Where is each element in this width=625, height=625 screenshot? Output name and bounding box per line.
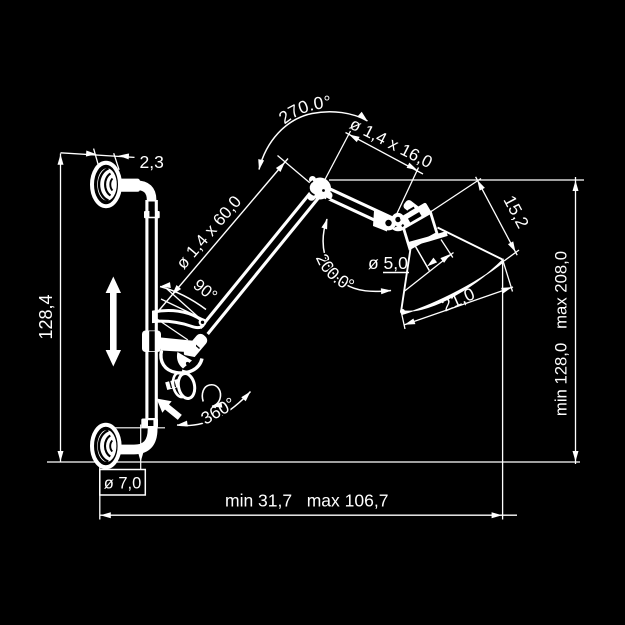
- svg-text:128,4: 128,4: [36, 294, 56, 339]
- svg-text:2,3: 2,3: [140, 152, 164, 172]
- svg-text:min 128,0 max 208,0: min 128,0 max 208,0: [552, 251, 571, 416]
- svg-text:min 31,7 max 106,7: min 31,7 max 106,7: [225, 491, 388, 511]
- svg-text:ø 5,0: ø 5,0: [368, 253, 408, 273]
- svg-text:ø 7,0: ø 7,0: [104, 475, 142, 493]
